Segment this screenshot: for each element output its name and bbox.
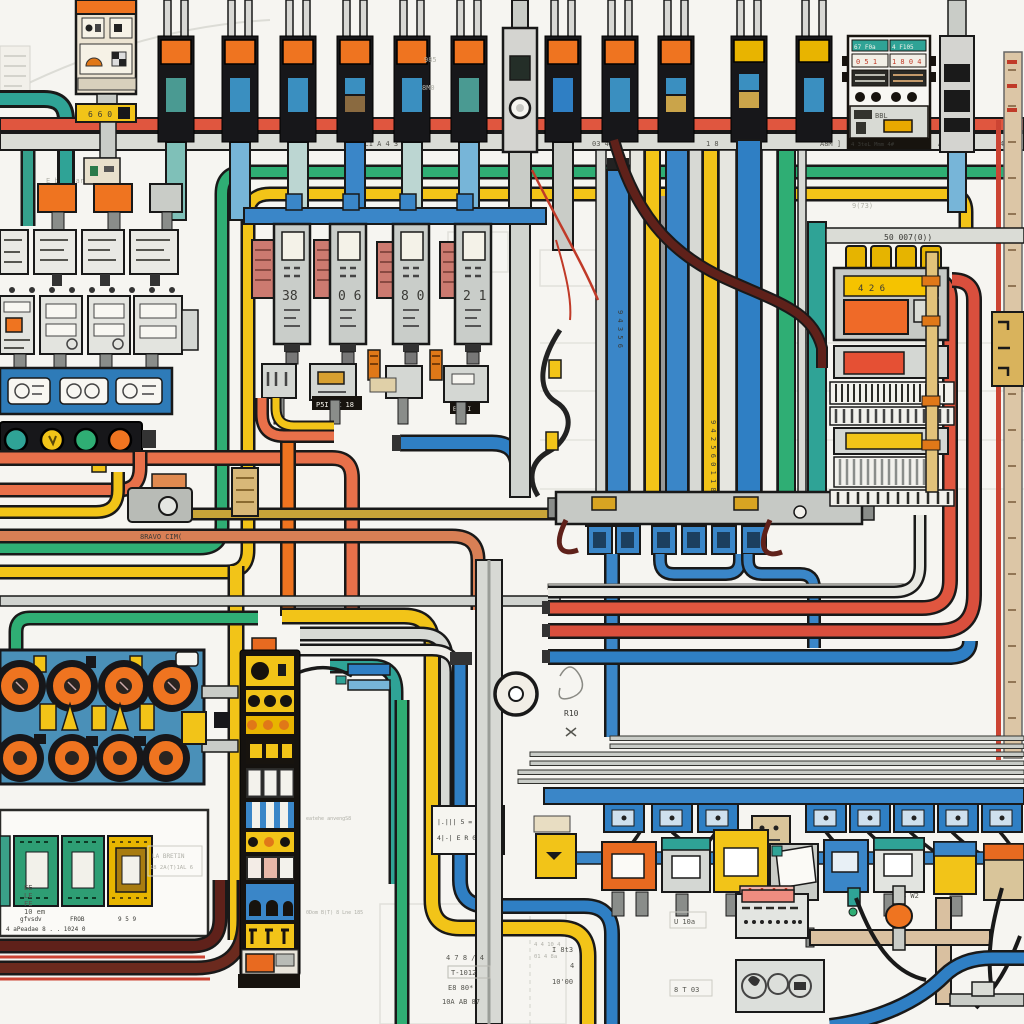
bar-text: 9 4 3 5 6 <box>616 310 624 348</box>
tower-digits: 0 6 <box>338 289 361 304</box>
legend-panel: gfvsdv FROB 9 5 9 EE LE FE 10 em LA BRET… <box>0 810 244 979</box>
orange-valve-ball <box>886 904 912 928</box>
tower-fittings: P5I RZ 18 B 3 I <box>262 350 518 497</box>
indicator-dot-orange <box>109 429 131 451</box>
amber-indicator <box>884 120 912 132</box>
bolt-row <box>9 287 175 293</box>
annotation: I 8t3 <box>552 946 573 954</box>
legend-square-green-1 <box>14 836 58 906</box>
legend-note: LA BRETIN <box>152 853 185 860</box>
wiring-diagram-page: E bfevearCew T 4 4 10 4 01 4 8a A 4 K3L1… <box>0 0 1024 1024</box>
coupler <box>232 468 258 516</box>
annotation: 4 <box>570 962 574 970</box>
panel-header: 4 F105 <box>892 44 914 51</box>
annotation: 4 7 8 / 4 <box>446 954 484 962</box>
red-wire <box>556 240 570 320</box>
blue-din-rail <box>544 788 1024 804</box>
legend-col-text: EE <box>24 884 32 892</box>
legend-caption: gfvsdv <box>20 916 42 923</box>
bolt <box>592 497 616 510</box>
valve-label: 8RAVO CIM( <box>140 533 182 541</box>
relay-cluster <box>0 184 198 472</box>
terminal-strip: eatehe anvengS8 0Dom B(T) 8 Lne 185 <box>238 638 390 988</box>
orange-module <box>844 300 908 334</box>
faint-strip-note: eatehe anvengS8 <box>306 816 351 822</box>
legend-col-text: LE <box>24 892 32 900</box>
scribble-note: 985 <box>424 56 437 64</box>
loose-wire <box>532 330 568 496</box>
faint-strip-note: 0Dom B(T) 8 Lne 185 <box>306 910 363 916</box>
legend-square-yellow <box>108 836 152 906</box>
rating-plate-text: 6 6 0 <box>88 110 112 119</box>
tiny-note: 9(73) <box>852 202 873 210</box>
legend-col-text: 10 em <box>24 908 45 916</box>
legend-row-text: 4 aPeadae 8 . . 1024 0 <box>6 926 86 933</box>
faint-col-text: 01 4 8a <box>534 954 557 960</box>
bottom-bus-assembly <box>518 736 1024 916</box>
legend-caption: FROB <box>70 916 85 923</box>
panel-header: 67 F0a <box>854 44 876 51</box>
indicator-dot-teal <box>5 429 27 451</box>
digit-display: 0 5 1 <box>856 58 877 66</box>
tower-digits: 8 0 <box>401 289 424 304</box>
panel-footer: 4 3teL Mmm 4# <box>851 142 895 148</box>
dial-board <box>0 650 238 784</box>
device-strip-label: 4 2 6 <box>858 284 885 294</box>
indicator-dot-green <box>75 429 97 451</box>
annotation: U 10a <box>674 918 695 926</box>
balloon-doodle <box>559 667 582 699</box>
legend-caption: 9 5 9 <box>118 916 136 923</box>
annotation: 8 T 03 <box>674 986 699 994</box>
relay-cap <box>38 184 76 212</box>
washer-note: R10 <box>564 709 579 718</box>
bus-clamps <box>588 526 766 554</box>
device-bus-label: 50 007(0)) <box>884 233 932 242</box>
bottom-right-devices <box>736 886 1024 1024</box>
relay-cap <box>94 184 132 212</box>
control-panel: 67 F0a 4 F105 0 5 1 1 8 0 4 BBL 4 3teL M… <box>842 36 936 148</box>
bus-label: 1 8 <box>706 140 719 148</box>
cap <box>846 246 866 270</box>
annotation: T-1012 <box>451 969 476 977</box>
relay-row-small <box>0 230 178 286</box>
wiring-diagram-canvas: E bfevearCew T 4 4 10 4 01 4 8a A 4 K3L1… <box>0 0 1024 1024</box>
ruler-strip <box>1004 52 1022 758</box>
annotation: E8 80* <box>448 984 473 992</box>
indicator-lamp <box>6 318 22 332</box>
digit-display: 1 8 0 4 <box>892 58 922 66</box>
tower-digits: 38 <box>282 289 298 304</box>
legend-note: 18 2A(T)1AL 6 <box>150 865 193 871</box>
scribble-note: 8M0 <box>422 84 435 92</box>
annotation: 10A AB 87 <box>442 998 480 1006</box>
annotation: 10'00 <box>552 978 573 986</box>
legend-col-text: FE <box>24 900 32 908</box>
utility-post <box>503 0 537 212</box>
blue-terminal-block <box>0 368 172 414</box>
bolt <box>734 497 758 510</box>
legend-square-green-2 <box>62 836 104 906</box>
panel-chip-label: BBL <box>875 112 888 120</box>
meter-device: 6 6 0 <box>76 0 136 184</box>
tower-digits: 2 1 <box>463 289 486 304</box>
relay-row-large <box>0 296 198 368</box>
